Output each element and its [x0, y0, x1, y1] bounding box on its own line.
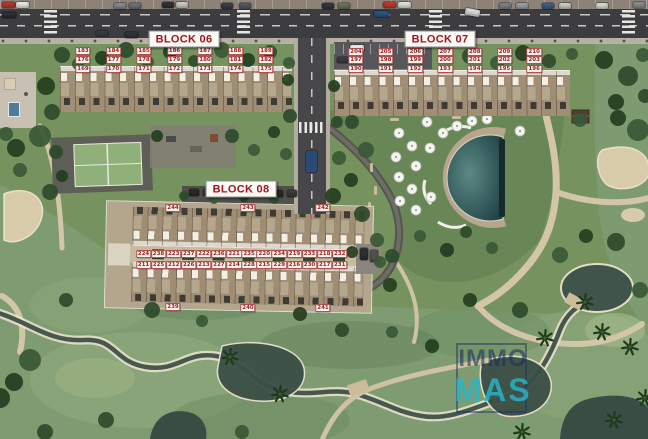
plot-label[interactable]: 182: [258, 56, 273, 64]
block-06-title[interactable]: BLOCK 06: [149, 31, 220, 48]
plot-label[interactable]: 221: [226, 250, 241, 258]
plot-label[interactable]: 192: [408, 65, 423, 73]
plot-label[interactable]: 229: [272, 261, 287, 269]
plot-label[interactable]: 197: [348, 56, 363, 64]
plot-label[interactable]: 198: [378, 56, 393, 64]
plot-label[interactable]: 195: [497, 65, 512, 73]
plot-label[interactable]: 237: [181, 250, 196, 258]
plot-label[interactable]: 220: [257, 250, 272, 258]
plot-label[interactable]: 185: [136, 47, 151, 55]
plot-label[interactable]: 207: [437, 48, 452, 56]
plot-label[interactable]: 242: [315, 204, 330, 212]
plot-label[interactable]: 228: [241, 261, 256, 269]
plot-label[interactable]: 200: [437, 56, 452, 64]
plot-label[interactable]: 199: [408, 56, 423, 64]
plot-label[interactable]: 190: [348, 65, 363, 73]
plot-label[interactable]: 243: [240, 204, 255, 212]
plot-label[interactable]: 226: [181, 261, 196, 269]
site-plan: 1831841851861871881891761771781791801811…: [0, 0, 648, 439]
plot-label[interactable]: 230: [302, 261, 317, 269]
plot-label[interactable]: 240: [240, 304, 255, 312]
plot-labels-layer: 1831841851861871881891761771781791801811…: [0, 0, 648, 439]
plot-label[interactable]: 202: [497, 56, 512, 64]
plot-label[interactable]: 244: [165, 204, 180, 212]
plot-label[interactable]: 180: [197, 56, 212, 64]
plot-label[interactable]: 191: [378, 65, 393, 73]
plot-label[interactable]: 218: [317, 250, 332, 258]
plot-label[interactable]: 201: [467, 56, 482, 64]
plot-label[interactable]: 214: [226, 261, 241, 269]
plot-label[interactable]: 183: [75, 47, 90, 55]
plot-label[interactable]: 194: [467, 65, 482, 73]
plot-label[interactable]: 217: [317, 261, 332, 269]
plot-label[interactable]: 224: [136, 250, 151, 258]
plot-label[interactable]: 177: [106, 56, 121, 64]
plot-label[interactable]: 235: [241, 250, 256, 258]
plot-label[interactable]: 212: [166, 261, 181, 269]
plot-label[interactable]: 238: [151, 250, 166, 258]
plot-label[interactable]: 206: [408, 48, 423, 56]
plot-label[interactable]: 188: [228, 47, 243, 55]
plot-label[interactable]: 215: [257, 261, 272, 269]
plot-label[interactable]: 186: [167, 47, 182, 55]
block-07-title[interactable]: BLOCK 07: [405, 31, 476, 48]
plot-label[interactable]: 204: [348, 48, 363, 56]
plot-label[interactable]: 223: [166, 250, 181, 258]
plot-label[interactable]: 181: [228, 56, 243, 64]
plot-label[interactable]: 208: [467, 48, 482, 56]
plot-label[interactable]: 213: [196, 261, 211, 269]
plot-label[interactable]: 173: [197, 65, 212, 73]
plot-label[interactable]: 236: [211, 250, 226, 258]
plot-label[interactable]: 209: [497, 48, 512, 56]
plot-label[interactable]: 222: [196, 250, 211, 258]
plot-label[interactable]: 196: [526, 65, 541, 73]
plot-label[interactable]: 219: [287, 250, 302, 258]
plot-label[interactable]: 241: [315, 304, 330, 312]
plot-label[interactable]: 169: [75, 65, 90, 73]
plot-label[interactable]: 187: [197, 47, 212, 55]
plot-label[interactable]: 239: [165, 303, 180, 311]
plot-label[interactable]: 234: [272, 250, 287, 258]
plot-label[interactable]: 216: [287, 261, 302, 269]
plot-label[interactable]: 232: [332, 250, 347, 258]
plot-label[interactable]: 233: [302, 250, 317, 258]
plot-label[interactable]: 189: [258, 47, 273, 55]
plot-label[interactable]: 211: [136, 261, 151, 269]
plot-label[interactable]: 171: [136, 65, 151, 73]
plot-label[interactable]: 205: [378, 48, 393, 56]
plot-label[interactable]: 225: [151, 261, 166, 269]
plot-label[interactable]: 231: [332, 261, 347, 269]
plot-label[interactable]: 227: [211, 261, 226, 269]
plot-label[interactable]: 174: [228, 65, 243, 73]
block-08-title[interactable]: BLOCK 08: [206, 181, 277, 198]
plot-label[interactable]: 178: [136, 56, 151, 64]
plot-label[interactable]: 179: [167, 56, 182, 64]
plot-label[interactable]: 184: [106, 47, 121, 55]
plot-label[interactable]: 203: [526, 56, 541, 64]
plot-label[interactable]: 170: [106, 65, 121, 73]
plot-label[interactable]: 210: [526, 48, 541, 56]
plot-label[interactable]: 175: [258, 65, 273, 73]
plot-label[interactable]: 193: [437, 65, 452, 73]
plot-label[interactable]: 172: [167, 65, 182, 73]
plot-label[interactable]: 176: [75, 56, 90, 64]
